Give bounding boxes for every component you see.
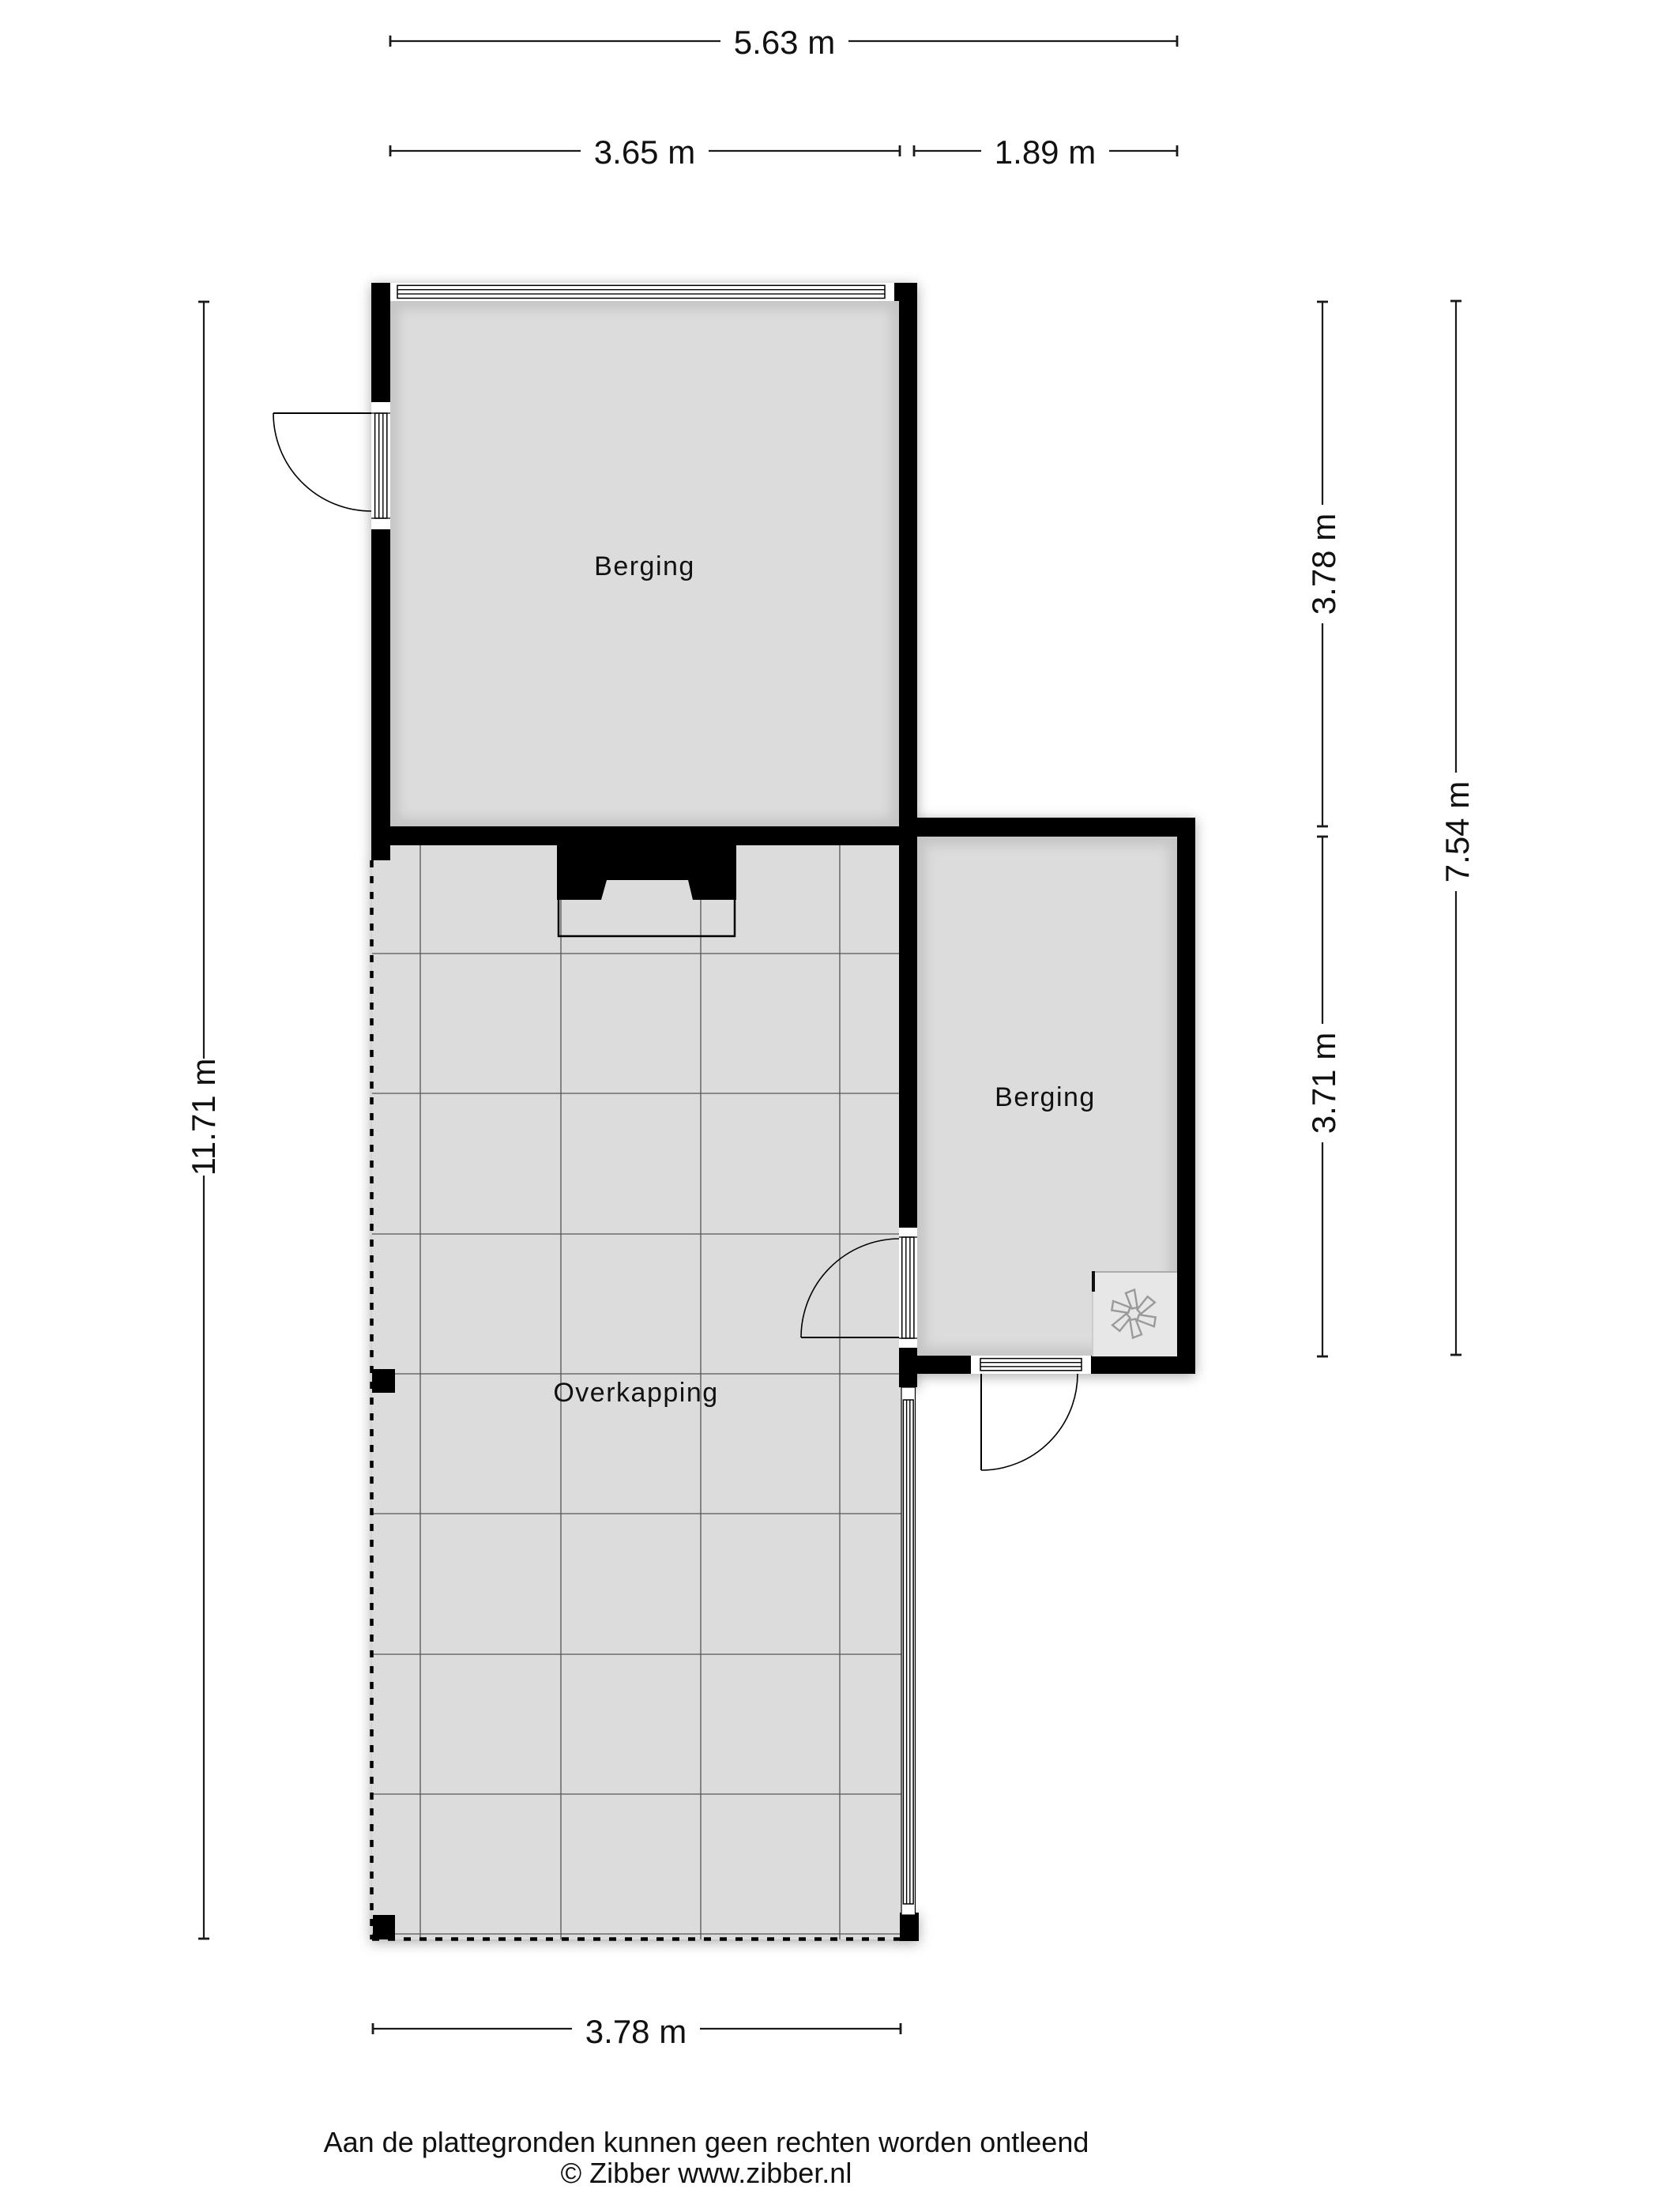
svg-text:3.65 m: 3.65 m [594,134,695,171]
svg-text:3.78 m: 3.78 m [1305,513,1342,615]
svg-text:11.71 m: 11.71 m [185,1059,222,1176]
svg-text:Berging: Berging [995,1082,1096,1112]
svg-text:3.71 m: 3.71 m [1305,1033,1342,1134]
svg-text:1.89 m: 1.89 m [995,134,1096,171]
svg-text:3.78 m: 3.78 m [585,2013,687,2050]
svg-text:Aan de plattegronden kunnen ge: Aan de plattegronden kunnen geen rechten… [324,2126,1089,2158]
svg-text:Overkapping: Overkapping [553,1378,718,1408]
svg-text:Berging: Berging [594,551,695,581]
svg-text:5.63 m: 5.63 m [734,24,835,61]
svg-text:© Zibber www.zibber.nl: © Zibber www.zibber.nl [561,2157,852,2189]
svg-text:7.54 m: 7.54 m [1439,781,1476,882]
